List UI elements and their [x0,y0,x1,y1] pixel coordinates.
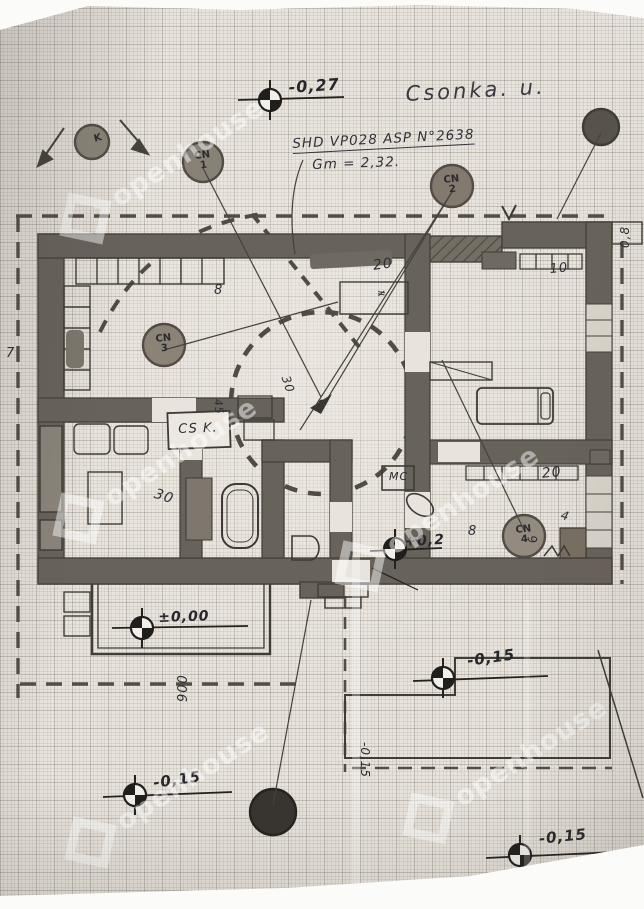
dim-se-wall: 8 [468,524,477,539]
dim-south-rot: -0,15 [358,742,372,778]
openhouse-logo-icon [334,540,386,592]
openhouse-logo-icon [64,816,116,868]
openhouse-logo-icon [402,792,454,844]
dim-top-mid-room: 20 [372,255,394,274]
marker-dark-south [250,789,296,835]
marker-dark-ne [583,109,619,145]
paper-crease [352,555,360,909]
dim-ne-corner: 0,8 [618,226,632,248]
paper-crease [524,600,530,909]
openhouse-logo-icon [52,492,104,544]
bathtub [222,484,258,548]
openhouse-logo-icon [59,192,111,244]
toilet [292,536,319,560]
dim-left-edge: 7 [6,346,15,361]
dim-top-left-wall: 8 [214,283,223,298]
marker-cn2-label: CN2 [431,173,473,197]
survey-note-line2: Gm = 2,32. [312,154,400,173]
benchmark-porch-value: ±0,00 [158,608,210,626]
dim-bedroom: 10 [549,260,569,277]
radiator [66,330,84,368]
top-middle-room-fixtures [310,250,408,314]
room-label-mc: MC [389,470,408,483]
bedroom-fixtures [430,252,582,424]
marker-cn3-label: CN3 [143,332,185,356]
kitchen-counters [64,258,224,390]
benchmark-top-value: -0,27 [288,74,340,97]
marker-cn4-label: CN4 [503,523,545,547]
photographed-floor-plan: { "labels": { "street": "Csonka. u.", "s… [0,0,644,909]
graph-paper: Csonka. u. SHD VP028 ASP N°2638 Gm = 2,3… [0,0,644,909]
bath-cabinet [186,478,212,540]
dim-porch-width: 900 [176,674,191,702]
